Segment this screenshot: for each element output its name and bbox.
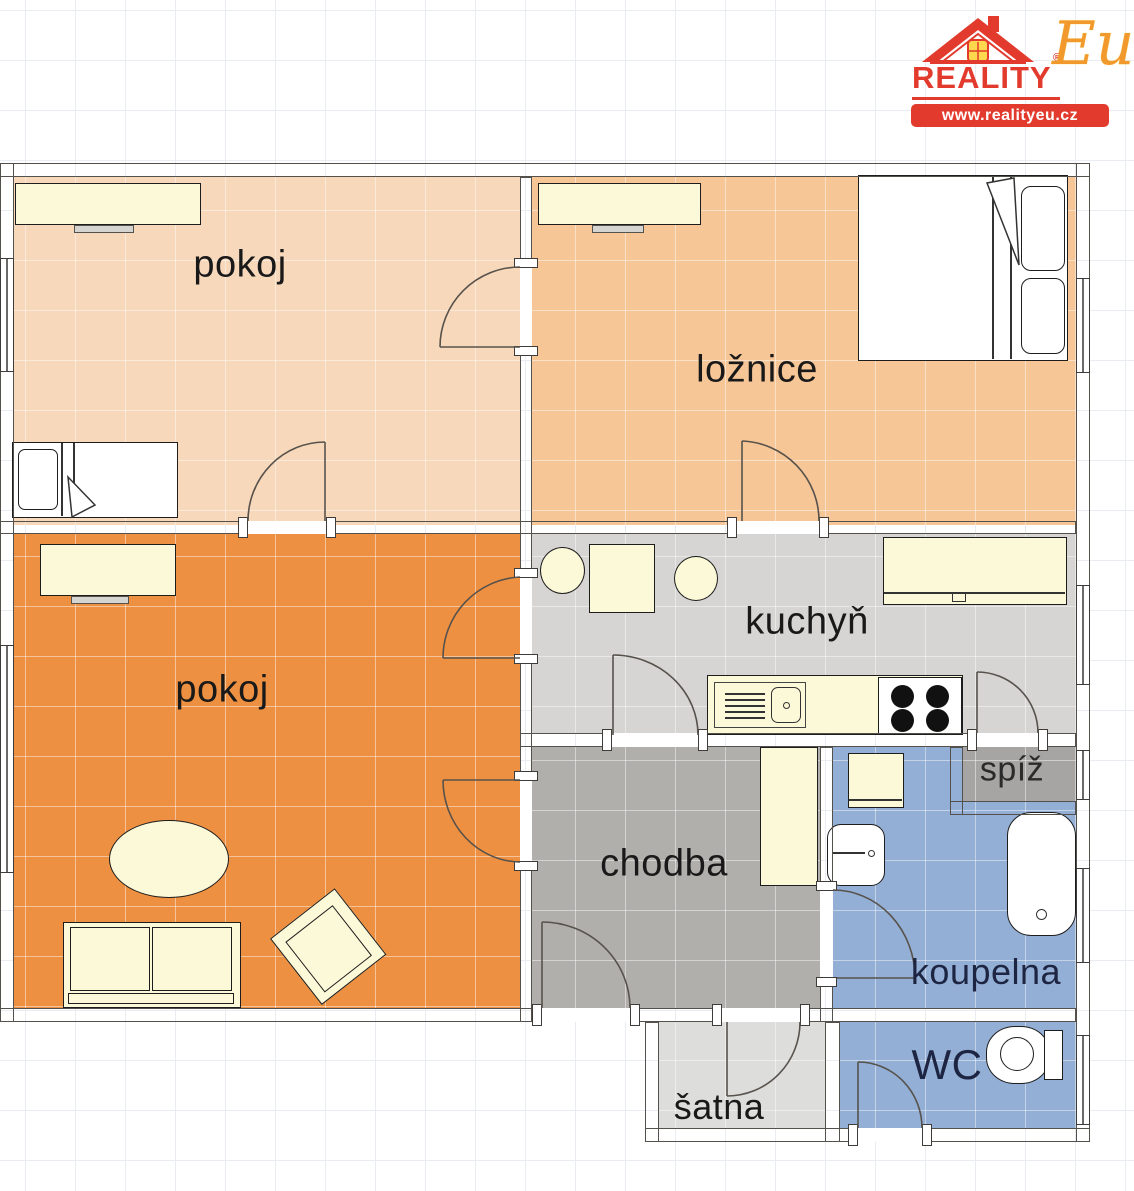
window <box>1076 868 1090 963</box>
sofa-cushion <box>70 927 150 991</box>
door-jamb <box>514 771 538 781</box>
bed-pillow <box>18 449 58 510</box>
bed-pillow <box>1021 278 1065 354</box>
door-jamb <box>712 1004 722 1026</box>
room-label-spiz: spíž <box>980 751 1044 790</box>
wall-mid <box>819 521 1076 534</box>
door-jamb <box>922 1124 932 1146</box>
wall-kitchen-bottom <box>520 733 612 747</box>
bed-line <box>1010 176 1012 359</box>
burner <box>891 709 914 732</box>
cabinet-handle <box>952 593 966 602</box>
sink-drainer <box>725 693 765 721</box>
dresser-handle <box>71 596 129 604</box>
door-opening <box>977 733 1038 747</box>
door-jamb <box>816 881 837 891</box>
oval-table <box>109 820 229 898</box>
wall-chodba-koupelna <box>820 747 833 890</box>
door-opening <box>612 733 698 747</box>
door-jamb <box>602 729 612 751</box>
room-label-kuchyn: kuchyň <box>745 601 868 644</box>
door-opening <box>820 890 833 978</box>
wall-top <box>0 163 1090 177</box>
wall-mid <box>0 521 248 534</box>
logo-brand-text: REALITY <box>912 60 1052 96</box>
door-jamb <box>727 517 737 538</box>
door-jamb <box>238 517 248 538</box>
door-opening <box>520 780 532 862</box>
wall-satna-wc <box>825 1022 840 1142</box>
washing-machine <box>848 753 904 808</box>
door-jamb <box>514 258 538 268</box>
room-label-chodba: chodba <box>600 843 728 886</box>
room-label-loznice: ložnice <box>696 349 818 392</box>
window <box>1076 1035 1090 1125</box>
door-jamb <box>532 1004 542 1026</box>
sofa-cushion <box>152 927 232 991</box>
wardrobe <box>760 747 818 886</box>
door-jamb <box>967 729 977 751</box>
door-opening <box>858 1128 922 1142</box>
window <box>0 258 14 372</box>
washer-line <box>849 799 902 801</box>
window <box>1076 585 1090 685</box>
bed-line <box>992 176 994 359</box>
sink-bowl <box>771 687 801 723</box>
bed-line <box>73 443 75 516</box>
wall-spine <box>520 862 532 1022</box>
dresser-handle <box>74 225 134 233</box>
door-jamb <box>514 346 538 356</box>
wall-spine <box>520 177 532 267</box>
bathroom-sink <box>827 824 885 886</box>
kitchen-table <box>589 544 655 613</box>
door-opening <box>737 521 819 534</box>
tap-line <box>832 852 865 854</box>
realityeu-logo: REALITY ® Eu www.realityeu.cz <box>900 14 1134 118</box>
door-jamb <box>326 517 336 538</box>
room-label-pokoj-bottom: pokoj <box>175 669 268 712</box>
door-jamb <box>514 654 538 664</box>
room-label-wc: WC <box>912 1041 983 1089</box>
window <box>1076 750 1090 800</box>
stove <box>878 677 962 735</box>
door-jamb <box>819 517 829 538</box>
wall-spine <box>520 655 532 780</box>
burner <box>891 685 914 708</box>
toilet-bowl <box>986 1026 1050 1084</box>
toilet-seat <box>1000 1037 1034 1071</box>
door-jamb <box>1038 729 1048 751</box>
dresser-handle <box>592 225 644 233</box>
door-opening <box>722 1008 800 1022</box>
door-opening <box>520 577 532 655</box>
double-bed <box>858 175 1068 361</box>
toilet-tank <box>1044 1030 1063 1080</box>
wall-ext-bottom <box>922 1128 1090 1142</box>
room-label-satna: šatna <box>674 1086 765 1128</box>
room-label-pokoj-top: pokoj <box>193 244 286 287</box>
wall-bottom <box>630 1008 722 1022</box>
door-opening <box>248 521 326 534</box>
sofa-seat <box>68 993 234 1004</box>
sink-drain <box>783 702 790 709</box>
bathtub-drain <box>1036 909 1047 920</box>
window <box>0 645 14 873</box>
wall-spiz-bottom <box>950 801 1076 815</box>
cabinet-line <box>884 592 1065 594</box>
room-label-koupelna: koupelna <box>911 951 1061 993</box>
wall-spine <box>520 347 532 577</box>
kitchen-cabinet <box>883 537 1067 605</box>
door-jamb <box>698 729 708 751</box>
tap-knob <box>868 850 875 857</box>
bed-pillow <box>1021 186 1065 271</box>
single-bed <box>12 442 178 518</box>
wall-bottom <box>0 1008 542 1022</box>
burner <box>926 685 949 708</box>
bathtub <box>1007 812 1076 936</box>
entrance-door-opening <box>542 1008 630 1022</box>
chair <box>674 556 718 601</box>
wall-kitchen-bottom <box>698 733 977 747</box>
sink-unit <box>714 682 806 728</box>
burner <box>926 709 949 732</box>
logo-url-banner: www.realityeu.cz <box>911 104 1109 127</box>
door-jamb <box>514 861 538 871</box>
wall-ext-bottom <box>645 1128 858 1142</box>
door-jamb <box>514 568 538 578</box>
dresser <box>15 183 201 225</box>
door-jamb <box>800 1004 810 1026</box>
door-jamb <box>630 1004 640 1026</box>
house-icon <box>918 14 1038 66</box>
door-jamb <box>848 1124 858 1146</box>
door-jamb <box>816 977 837 987</box>
dresser <box>538 183 701 225</box>
logo-eu-script: Eu <box>1052 14 1134 74</box>
window <box>1076 278 1090 373</box>
sofa <box>63 922 241 1008</box>
wall-bottom <box>800 1008 1076 1022</box>
logo-underline <box>912 97 1060 100</box>
dresser <box>40 544 176 596</box>
wall-satna-left <box>645 1022 659 1142</box>
door-opening <box>520 267 532 347</box>
chair <box>540 547 585 594</box>
wall-mid <box>326 521 737 534</box>
bed-line <box>61 443 63 516</box>
